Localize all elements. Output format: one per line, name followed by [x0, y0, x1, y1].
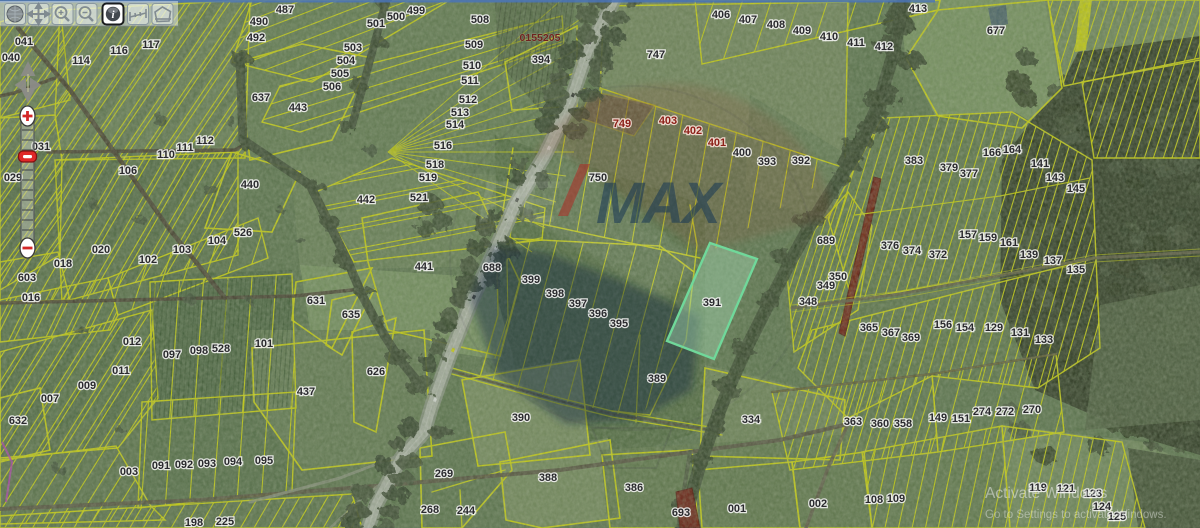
- svg-text:007: 007: [41, 393, 59, 405]
- svg-text:637: 637: [252, 92, 270, 104]
- svg-text:016: 016: [22, 292, 40, 304]
- svg-text:518: 518: [426, 159, 444, 171]
- svg-text:505: 505: [331, 68, 349, 80]
- svg-text:350: 350: [829, 271, 847, 283]
- svg-text:141: 141: [1031, 158, 1049, 170]
- svg-text:693: 693: [672, 507, 690, 519]
- svg-text:094: 094: [224, 456, 243, 468]
- svg-text:139: 139: [1020, 249, 1038, 261]
- svg-text:441: 441: [415, 261, 433, 273]
- svg-text:512: 512: [459, 94, 477, 106]
- svg-text:506: 506: [323, 81, 341, 93]
- svg-text:511: 511: [461, 75, 479, 87]
- svg-text:410: 410: [820, 31, 838, 43]
- svg-text:137: 137: [1044, 255, 1062, 267]
- svg-text:408: 408: [767, 19, 785, 31]
- svg-text:395: 395: [610, 318, 628, 330]
- svg-text:490: 490: [250, 16, 268, 28]
- svg-text:689: 689: [817, 235, 835, 247]
- svg-text:388: 388: [539, 472, 557, 484]
- svg-text:154: 154: [956, 322, 975, 334]
- svg-text:166: 166: [983, 147, 1001, 159]
- svg-text:407: 407: [739, 14, 757, 26]
- svg-text:526: 526: [234, 227, 252, 239]
- svg-text:272: 272: [996, 406, 1014, 418]
- svg-text:159: 159: [979, 232, 997, 244]
- svg-text:632: 632: [9, 415, 27, 427]
- svg-text:102: 102: [139, 254, 157, 266]
- svg-text:104: 104: [208, 235, 227, 247]
- svg-text:108: 108: [865, 494, 883, 506]
- svg-text:635: 635: [342, 309, 360, 321]
- svg-text:095: 095: [255, 455, 273, 467]
- svg-text:376: 376: [881, 240, 899, 252]
- svg-text:500: 500: [387, 11, 405, 23]
- svg-text:Go to Settings to activate Win: Go to Settings to activate Windows.: [985, 509, 1167, 521]
- svg-text:093: 093: [198, 458, 216, 470]
- svg-text:440: 440: [241, 179, 259, 191]
- svg-text:487: 487: [276, 4, 294, 16]
- svg-text:394: 394: [532, 54, 551, 66]
- svg-text:116: 116: [110, 45, 128, 57]
- svg-text:367: 367: [882, 327, 900, 339]
- svg-text:111: 111: [176, 142, 193, 154]
- svg-text:442: 442: [357, 194, 375, 206]
- svg-text:516: 516: [434, 140, 452, 152]
- svg-text:749: 749: [613, 118, 631, 130]
- svg-text:631: 631: [307, 295, 325, 307]
- svg-text:508: 508: [471, 14, 489, 26]
- svg-text:135: 135: [1067, 264, 1085, 276]
- svg-text:374: 374: [903, 245, 922, 257]
- svg-text:198: 198: [185, 517, 203, 528]
- svg-text:397: 397: [569, 298, 587, 310]
- svg-text:437: 437: [297, 386, 315, 398]
- svg-text:009: 009: [78, 380, 96, 392]
- svg-text:392: 392: [792, 155, 810, 167]
- svg-text:131: 131: [1011, 327, 1029, 339]
- svg-text:129: 129: [985, 322, 1003, 334]
- svg-text:688: 688: [483, 262, 501, 274]
- svg-text:002: 002: [809, 498, 827, 510]
- svg-text:398: 398: [546, 288, 564, 300]
- svg-text:413: 413: [909, 3, 927, 15]
- svg-text:399: 399: [522, 274, 540, 286]
- svg-text:501: 501: [367, 18, 385, 30]
- svg-text:164: 164: [1003, 144, 1022, 156]
- svg-text:0155205: 0155205: [520, 32, 561, 44]
- svg-text:747: 747: [647, 49, 665, 61]
- svg-text:040: 040: [2, 52, 20, 64]
- svg-text:409: 409: [793, 25, 811, 37]
- svg-text:379: 379: [940, 162, 958, 174]
- svg-text:401: 401: [708, 137, 726, 149]
- svg-text:001: 001: [728, 503, 746, 515]
- svg-text:RE: RE: [478, 170, 561, 235]
- svg-text:365: 365: [860, 322, 878, 334]
- svg-text:391: 391: [703, 297, 721, 309]
- svg-text:334: 334: [742, 414, 761, 426]
- svg-text:151: 151: [952, 413, 970, 425]
- svg-text:092: 092: [175, 459, 193, 471]
- svg-text:528: 528: [212, 343, 230, 355]
- svg-text:156: 156: [934, 319, 952, 331]
- svg-text:157: 157: [959, 229, 977, 241]
- svg-text:348: 348: [799, 296, 817, 308]
- svg-text:443: 443: [289, 102, 307, 114]
- svg-text:114: 114: [72, 55, 91, 67]
- svg-text:393: 393: [758, 156, 776, 168]
- svg-text:499: 499: [407, 5, 425, 17]
- svg-text:103: 103: [173, 244, 191, 256]
- svg-text:012: 012: [123, 336, 141, 348]
- svg-text:504: 504: [337, 55, 356, 67]
- svg-text:149: 149: [929, 412, 947, 424]
- svg-text:372: 372: [929, 249, 947, 261]
- svg-text:390: 390: [512, 412, 530, 424]
- svg-text:Activate Windows: Activate Windows: [985, 485, 1108, 502]
- svg-text:510: 510: [463, 60, 481, 72]
- svg-text:269: 269: [435, 468, 453, 480]
- svg-text:018: 018: [54, 258, 72, 270]
- svg-text:396: 396: [589, 308, 607, 320]
- svg-text:097: 097: [163, 349, 181, 361]
- svg-text:402: 402: [684, 125, 702, 137]
- svg-text:363: 363: [844, 416, 862, 428]
- svg-text:244: 244: [457, 505, 476, 517]
- svg-text:626: 626: [367, 366, 385, 378]
- svg-text:274: 274: [973, 406, 992, 418]
- svg-text:003: 003: [120, 466, 138, 478]
- svg-text:098: 098: [190, 345, 208, 357]
- svg-text:411: 411: [847, 37, 865, 49]
- svg-text:091: 091: [152, 460, 170, 472]
- svg-text:377: 377: [960, 168, 978, 180]
- svg-text:514: 514: [446, 119, 465, 131]
- svg-text:509: 509: [465, 39, 483, 51]
- svg-text:101: 101: [255, 338, 273, 350]
- svg-text:041: 041: [15, 36, 33, 48]
- svg-text:358: 358: [894, 418, 912, 430]
- svg-text:145: 145: [1067, 183, 1085, 195]
- svg-text:386: 386: [625, 482, 643, 494]
- svg-text:406: 406: [712, 9, 730, 21]
- svg-text:369: 369: [902, 332, 920, 344]
- svg-text:603: 603: [18, 272, 36, 284]
- svg-text:521: 521: [410, 192, 428, 204]
- svg-text:106: 106: [119, 165, 137, 177]
- svg-text:133: 133: [1035, 334, 1053, 346]
- svg-text:513: 513: [451, 107, 469, 119]
- svg-text:503: 503: [344, 42, 362, 54]
- svg-text:161: 161: [1000, 237, 1018, 249]
- svg-text:412: 412: [875, 41, 893, 53]
- svg-text:403: 403: [659, 115, 677, 127]
- svg-text:109: 109: [887, 493, 905, 505]
- svg-text:492: 492: [247, 32, 265, 44]
- svg-text:029: 029: [4, 172, 22, 184]
- svg-text:383: 383: [905, 155, 923, 167]
- svg-text:270: 270: [1023, 404, 1041, 416]
- svg-text:112: 112: [196, 135, 214, 147]
- svg-text:020: 020: [92, 244, 110, 256]
- svg-text:519: 519: [419, 172, 437, 184]
- svg-text:750: 750: [589, 172, 607, 184]
- svg-text:400: 400: [733, 147, 751, 159]
- svg-text:143: 143: [1046, 172, 1064, 184]
- svg-text:389: 389: [648, 373, 666, 385]
- svg-text:225: 225: [216, 516, 234, 528]
- svg-text:MAX: MAX: [596, 171, 724, 236]
- svg-text:268: 268: [421, 504, 439, 516]
- svg-text:360: 360: [871, 418, 889, 430]
- svg-text:677: 677: [987, 25, 1005, 37]
- svg-text:110: 110: [157, 149, 175, 161]
- svg-text:117: 117: [142, 39, 160, 51]
- svg-text:011: 011: [112, 365, 130, 377]
